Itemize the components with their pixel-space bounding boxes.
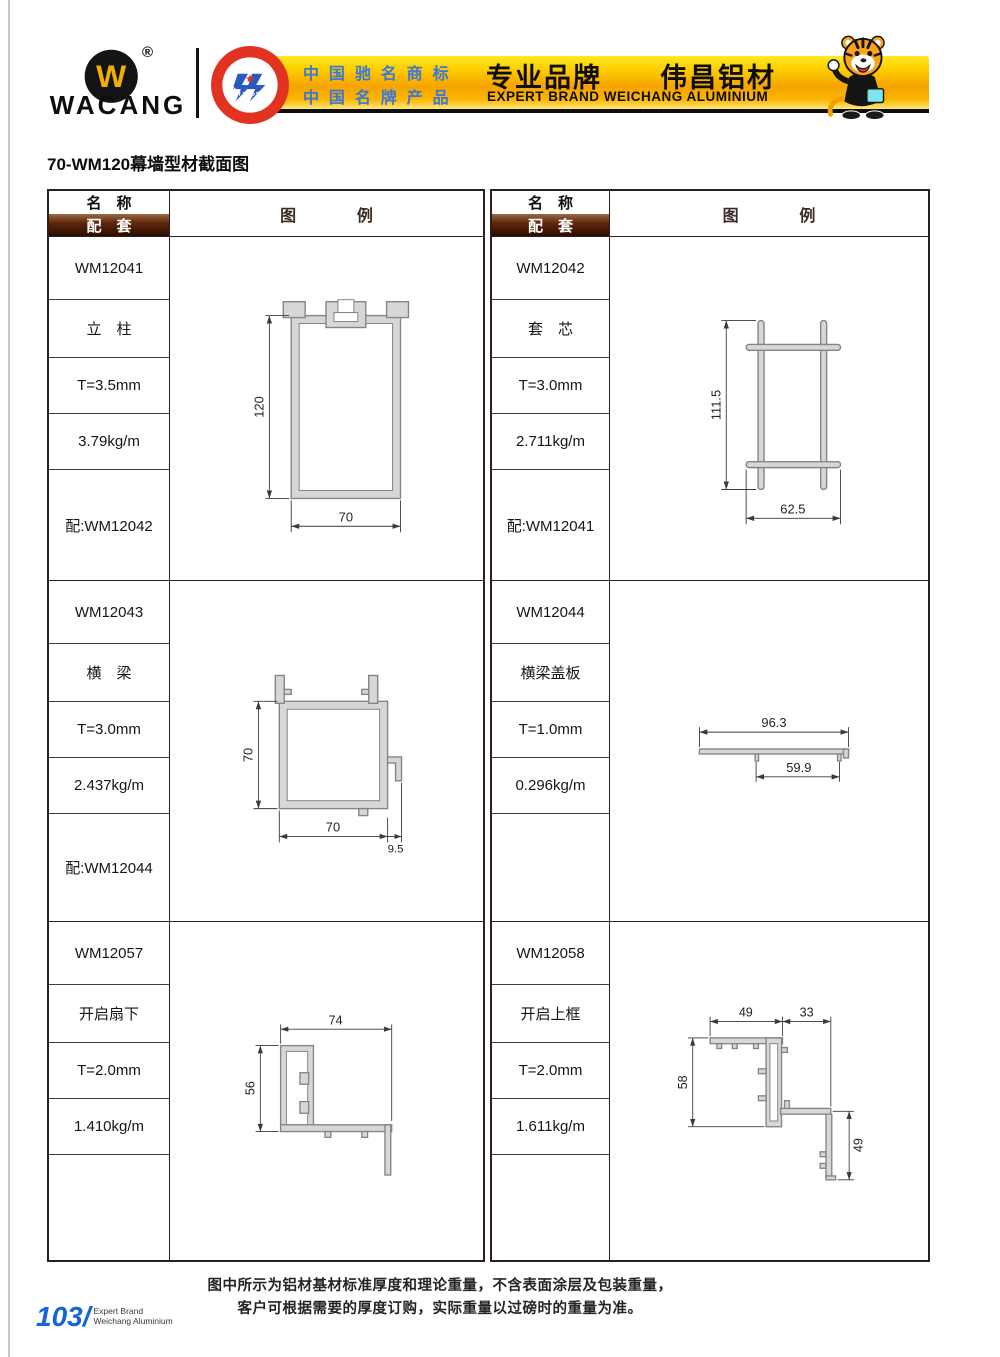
page-brand-line1: Expert Brand <box>94 1306 144 1316</box>
product-weight: 2.711kg/m <box>492 414 609 470</box>
product-weight: 1.611kg/m <box>492 1099 609 1155</box>
product-match: 配:WM12041 <box>492 470 609 580</box>
dim-ext: 9.5 <box>388 843 404 855</box>
product-code: WM12058 <box>492 922 609 985</box>
profile-tables: 名 称 配 套 图 例 WM12041 立 柱 T=3.5mm 3.79kg/m… <box>47 189 930 1262</box>
page-title: 70-WM120幕墙型材截面图 <box>47 150 249 175</box>
profile-diagram-wm12041: 120 70 <box>170 237 483 580</box>
product-row-wm12057: WM12057 开启扇下 T=2.0mm 1.410kg/m <box>49 922 483 1260</box>
product-thickness: T=3.0mm <box>492 358 609 414</box>
profile-diagram-wm12044: 96.3 59.9 <box>610 581 928 921</box>
diagram-cell: 74 56 <box>170 922 483 1260</box>
page-number-brand: Expert Brand Weichang Aluminium <box>94 1306 173 1326</box>
masthead: W ® WACANG 中国驰名商标 中国名牌产品 专业品牌 伟昌铝材 EXPER… <box>0 0 1000 150</box>
spec-cells: WM12041 立 柱 T=3.5mm 3.79kg/m 配:WM12042 <box>49 237 170 580</box>
product-code: WM12044 <box>492 581 609 644</box>
product-match: 配:WM12042 <box>49 470 169 580</box>
dim-height: 111.5 <box>708 390 723 420</box>
product-match: 配:WM12044 <box>49 814 169 921</box>
dim-inner: 59.9 <box>786 760 811 775</box>
banner-subtitle: EXPERT BRAND WEICHANG ALUMINIUM <box>487 89 768 104</box>
table-right: 名 称 配 套 图 例 WM12042 套 芯 T=3.0mm 2.711kg/… <box>490 189 930 1262</box>
tiger-mascot-icon <box>812 30 910 128</box>
product-name: 横梁盖板 <box>492 644 609 702</box>
dim-width: 62.5 <box>780 501 805 516</box>
name-header-cell: 名 称 配 套 <box>492 191 610 236</box>
product-code: WM12042 <box>492 237 609 300</box>
page-number-block: 103/ Expert Brand Weichang Aluminium <box>36 1303 173 1331</box>
dim-height: 56 <box>244 1081 258 1095</box>
product-weight: 0.296kg/m <box>492 758 609 814</box>
diagram-cell: 111.5 62.5 <box>610 237 928 580</box>
product-weight: 3.79kg/m <box>49 414 169 470</box>
table-right-header: 名 称 配 套 图 例 <box>492 191 928 237</box>
product-code: WM12043 <box>49 581 169 644</box>
dim-height: 120 <box>251 396 266 418</box>
product-name: 横 梁 <box>49 644 169 702</box>
dim-width: 70 <box>339 509 353 524</box>
product-row-wm12041: WM12041 立 柱 T=3.5mm 3.79kg/m 配:WM12042 <box>49 237 483 581</box>
product-thickness: T=2.0mm <box>492 1043 609 1099</box>
product-thickness: T=3.5mm <box>49 358 169 414</box>
page-number: 103/ <box>36 1303 91 1331</box>
profile-diagram-wm12043: 70 70 9.5 <box>170 581 483 921</box>
spec-cells: WM12043 横 梁 T=3.0mm 2.437kg/m 配:WM12044 <box>49 581 170 921</box>
dim-overall: 96.3 <box>761 715 786 730</box>
dim-width: 70 <box>326 819 340 834</box>
profile-diagram-wm12042: 111.5 62.5 <box>610 237 928 580</box>
product-name: 立 柱 <box>49 300 169 358</box>
brand-name: WACANG <box>48 90 188 121</box>
product-weight: 1.410kg/m <box>49 1099 169 1155</box>
diagram-cell: 96.3 59.9 <box>610 581 928 921</box>
product-code: WM12041 <box>49 237 169 300</box>
dim-height: 70 <box>240 748 255 762</box>
header-legend-label: 图 例 <box>170 191 483 236</box>
product-code: WM12057 <box>49 922 169 985</box>
product-thickness: T=2.0mm <box>49 1043 169 1099</box>
registered-mark: ® <box>142 44 153 61</box>
header-match-label: 配 套 <box>49 214 169 236</box>
product-weight: 2.437kg/m <box>49 758 169 814</box>
product-match <box>492 1155 609 1260</box>
header-name-label: 名 称 <box>492 191 609 214</box>
product-name: 开启扇下 <box>49 985 169 1043</box>
product-match <box>492 814 609 921</box>
table-left-header: 名 称 配 套 图 例 <box>49 191 483 237</box>
name-header-cell: 名 称 配 套 <box>49 191 170 236</box>
header-name-label: 名 称 <box>49 191 169 214</box>
footer-note-line1: 图中所示为铝材基材标准厚度和理论重量，不含表面涂层及包装重量， <box>0 1274 880 1295</box>
product-row-wm12058: WM12058 开启上框 T=2.0mm 1.611kg/m <box>492 922 928 1260</box>
header-match-label: 配 套 <box>492 214 609 236</box>
product-thickness: T=3.0mm <box>49 702 169 758</box>
spec-cells: WM12042 套 芯 T=3.0mm 2.711kg/m 配:WM12041 <box>492 237 610 580</box>
product-match <box>49 1155 169 1260</box>
dim-top-left: 49 <box>739 1006 753 1020</box>
spec-cells: WM12057 开启扇下 T=2.0mm 1.410kg/m <box>49 922 170 1260</box>
product-row-wm12044: WM12044 横梁盖板 T=1.0mm 0.296kg/m <box>492 581 928 922</box>
header-divider <box>196 48 199 118</box>
dim-width: 74 <box>329 1013 343 1027</box>
diagram-cell: 120 70 <box>170 237 483 580</box>
product-thickness: T=1.0mm <box>492 702 609 758</box>
profile-diagram-wm12058: 49 33 58 <box>610 922 928 1260</box>
product-row-wm12042: WM12042 套 芯 T=3.0mm 2.711kg/m 配:WM12041 <box>492 237 928 581</box>
logo-w-glyph: W <box>96 58 127 94</box>
product-name: 开启上框 <box>492 985 609 1043</box>
diagram-cell: 70 70 9.5 <box>170 581 483 921</box>
product-row-wm12043: WM12043 横 梁 T=3.0mm 2.437kg/m 配:WM12044 <box>49 581 483 922</box>
banner-slogan-1: 中国驰名商标 <box>303 60 459 84</box>
profile-diagram-wm12057: 74 56 <box>170 922 483 1260</box>
china-top-brand-badge-icon: 中国名牌 CHINA TOP BRAND <box>209 44 291 126</box>
catalog-page: W ® WACANG 中国驰名商标 中国名牌产品 专业品牌 伟昌铝材 EXPER… <box>0 0 1000 1357</box>
dim-right-height: 49 <box>852 1138 866 1152</box>
diagram-cell: 49 33 58 <box>610 922 928 1260</box>
spec-cells: WM12044 横梁盖板 T=1.0mm 0.296kg/m <box>492 581 610 921</box>
page-brand-line2: Weichang Aluminium <box>94 1316 173 1326</box>
spec-cells: WM12058 开启上框 T=2.0mm 1.611kg/m <box>492 922 610 1260</box>
table-left: 名 称 配 套 图 例 WM12041 立 柱 T=3.5mm 3.79kg/m… <box>47 189 485 1262</box>
dim-top-right: 33 <box>800 1006 814 1020</box>
dim-left-height: 58 <box>676 1075 690 1089</box>
header-legend-label: 图 例 <box>610 191 928 236</box>
banner-slogan-2: 中国名牌产品 <box>303 84 459 108</box>
product-name: 套 芯 <box>492 300 609 358</box>
